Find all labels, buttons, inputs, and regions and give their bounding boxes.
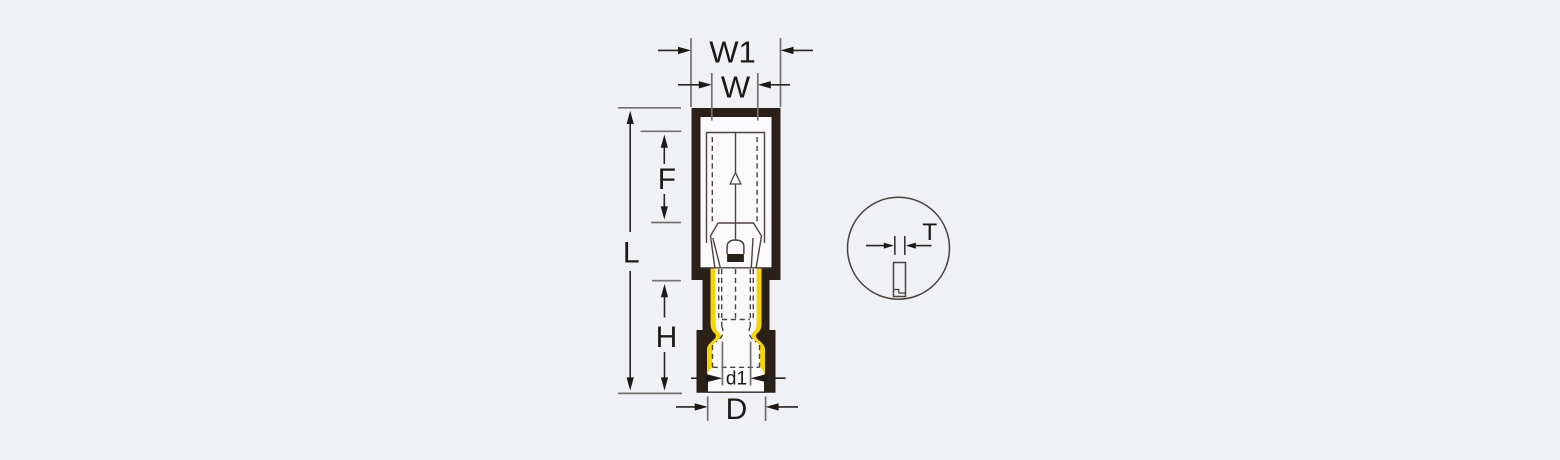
svg-text:T: T (922, 219, 937, 246)
svg-text:W: W (721, 70, 751, 105)
svg-text:D: D (726, 393, 748, 426)
svg-text:L: L (623, 236, 640, 269)
svg-text:d1: d1 (726, 369, 747, 390)
svg-text:F: F (658, 163, 676, 196)
svg-text:W1: W1 (709, 35, 756, 70)
svg-text:H: H (656, 321, 678, 354)
